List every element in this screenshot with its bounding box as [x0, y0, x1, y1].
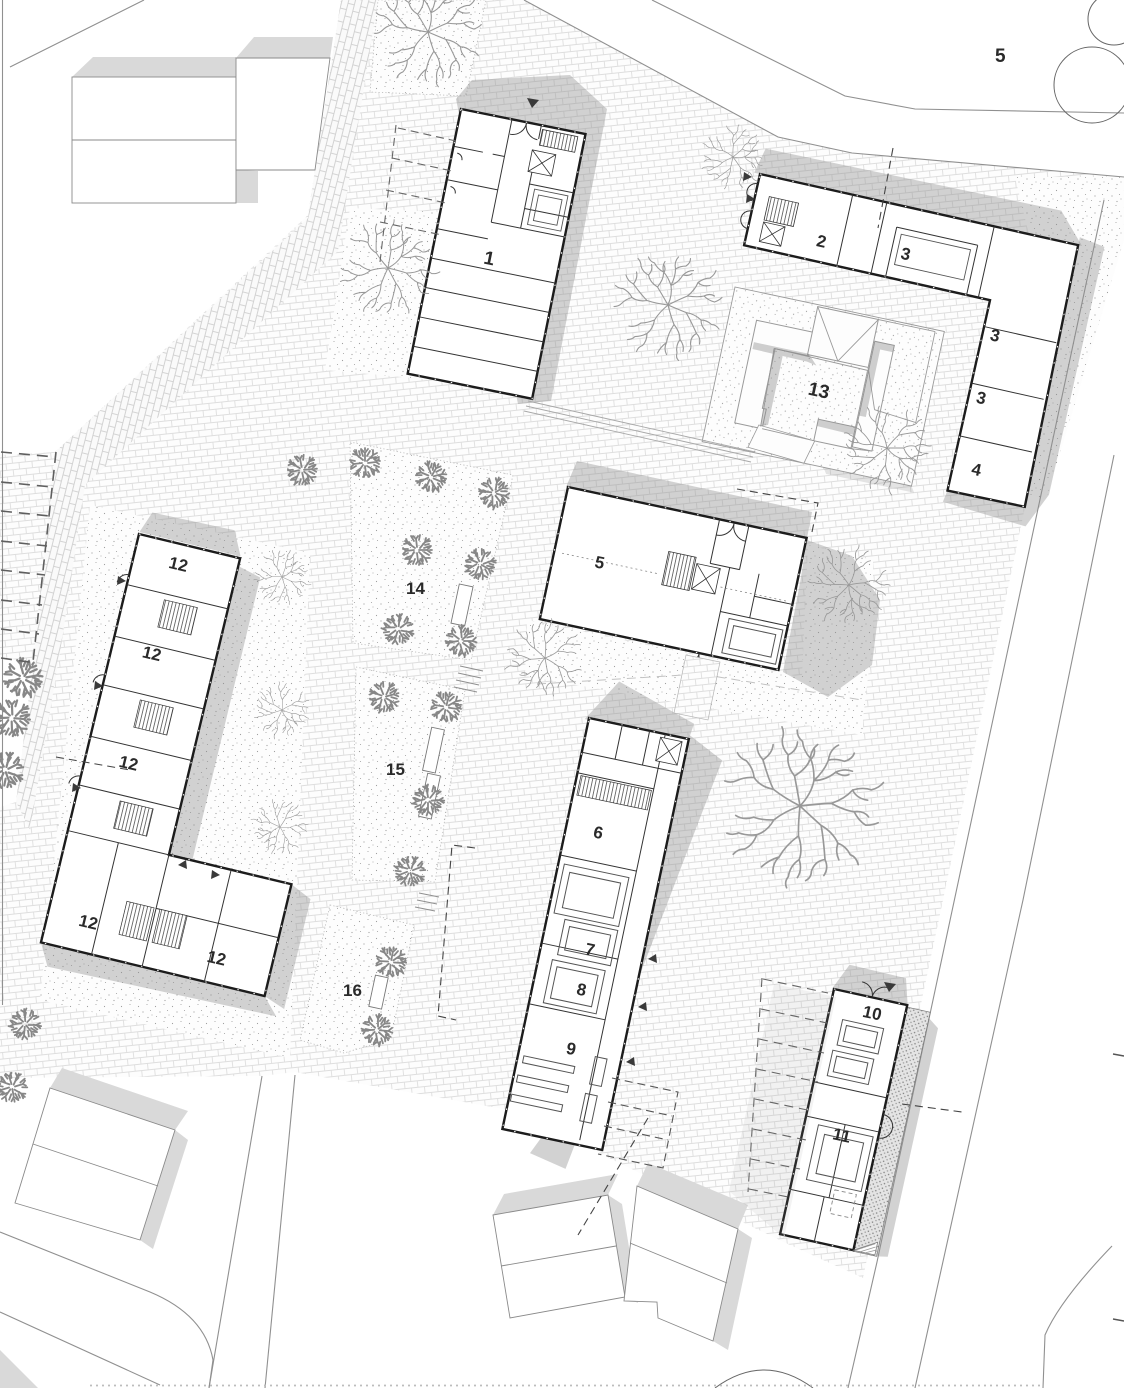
svg-text:14: 14	[406, 579, 425, 598]
svg-text:5: 5	[995, 46, 1006, 67]
svg-text:10: 10	[861, 1002, 884, 1025]
svg-text:13: 13	[806, 379, 831, 404]
svg-text:16: 16	[343, 981, 362, 1000]
svg-text:15: 15	[386, 760, 405, 779]
